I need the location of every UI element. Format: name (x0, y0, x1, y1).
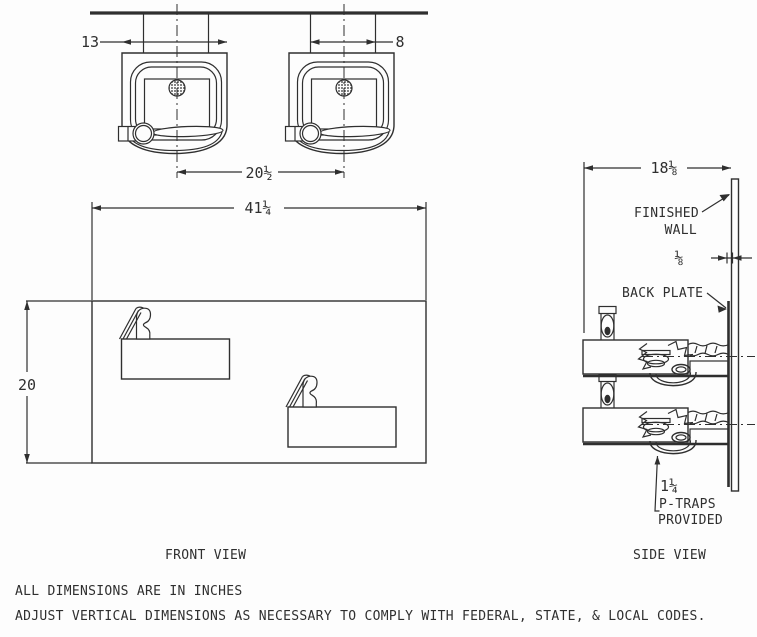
leader-line (707, 293, 726, 308)
side-view: 18⅛ ⅛ FINISHED WALL BACK PLATE (583, 159, 755, 528)
technical-drawing: 13 8 20½ 20 (0, 0, 757, 637)
arrowhead (718, 255, 727, 261)
dim-body-width: 13 (81, 33, 227, 51)
front-fountain-upper (120, 307, 230, 379)
arrowhead (177, 169, 186, 175)
finished-wall-label-1: FINISHED (634, 206, 699, 221)
callout-p-traps: 1¼ P-TRAPS PROVIDED (655, 456, 724, 528)
dim-wall-gap-text: ⅛ (674, 249, 683, 267)
plan-view: 13 8 20½ (81, 4, 428, 182)
side-view-caption: SIDE VIEW (633, 548, 706, 563)
arrowhead (24, 454, 30, 463)
arrowhead (584, 165, 593, 171)
arrowhead (655, 456, 661, 465)
trap-size-label: 1¼ (660, 477, 678, 495)
arrowhead (733, 255, 742, 261)
finished-wall-label-2: WALL (664, 223, 697, 238)
drawing-sheet: 13 8 20½ 20 (0, 0, 757, 637)
arrowhead (24, 301, 30, 310)
dim-height-text: 20 (18, 376, 36, 394)
arrowhead (218, 39, 227, 45)
arrowhead (367, 39, 376, 45)
note-line-2: ADJUST VERTICAL DIMENSIONS AS NECESSARY … (15, 609, 706, 624)
callout-finished-wall: FINISHED WALL (634, 194, 730, 238)
back-plate-label: BACK PLATE (622, 286, 703, 301)
arrowhead (722, 165, 731, 171)
dim-center-spacing-text: 20½ (245, 164, 272, 182)
arrowhead (417, 205, 426, 211)
arrowhead (311, 39, 320, 45)
dim-rough-in: 8 (311, 33, 405, 51)
arrowhead (718, 306, 728, 313)
note-line-1: ALL DIMENSIONS ARE IN INCHES (15, 584, 243, 599)
finished-wall (732, 179, 739, 491)
front-view: 20 41¼ (18, 199, 426, 463)
plan-fountain-right (286, 14, 395, 154)
dim-height: 20 (18, 301, 36, 463)
plan-fountain-left (119, 14, 228, 154)
dim-body-width-text: 13 (81, 33, 99, 51)
front-view-caption: FRONT VIEW (165, 548, 246, 563)
dim-center-spacing: 20½ (177, 164, 344, 182)
dim-width-text: 41¼ (244, 199, 271, 217)
dim-depth-text: 18⅛ (650, 159, 677, 177)
arrowhead (122, 39, 131, 45)
dim-wall-gap: ⅛ (674, 249, 752, 267)
arrowhead (335, 169, 344, 175)
callout-back-plate: BACK PLATE (622, 286, 727, 313)
trap-label-3: PROVIDED (658, 513, 723, 528)
arrowhead (92, 205, 101, 211)
dim-rough-in-text: 8 (395, 33, 404, 51)
trap-label-2: P-TRAPS (659, 497, 716, 512)
front-fountain-lower (286, 375, 396, 447)
dim-width: 41¼ (92, 199, 426, 300)
